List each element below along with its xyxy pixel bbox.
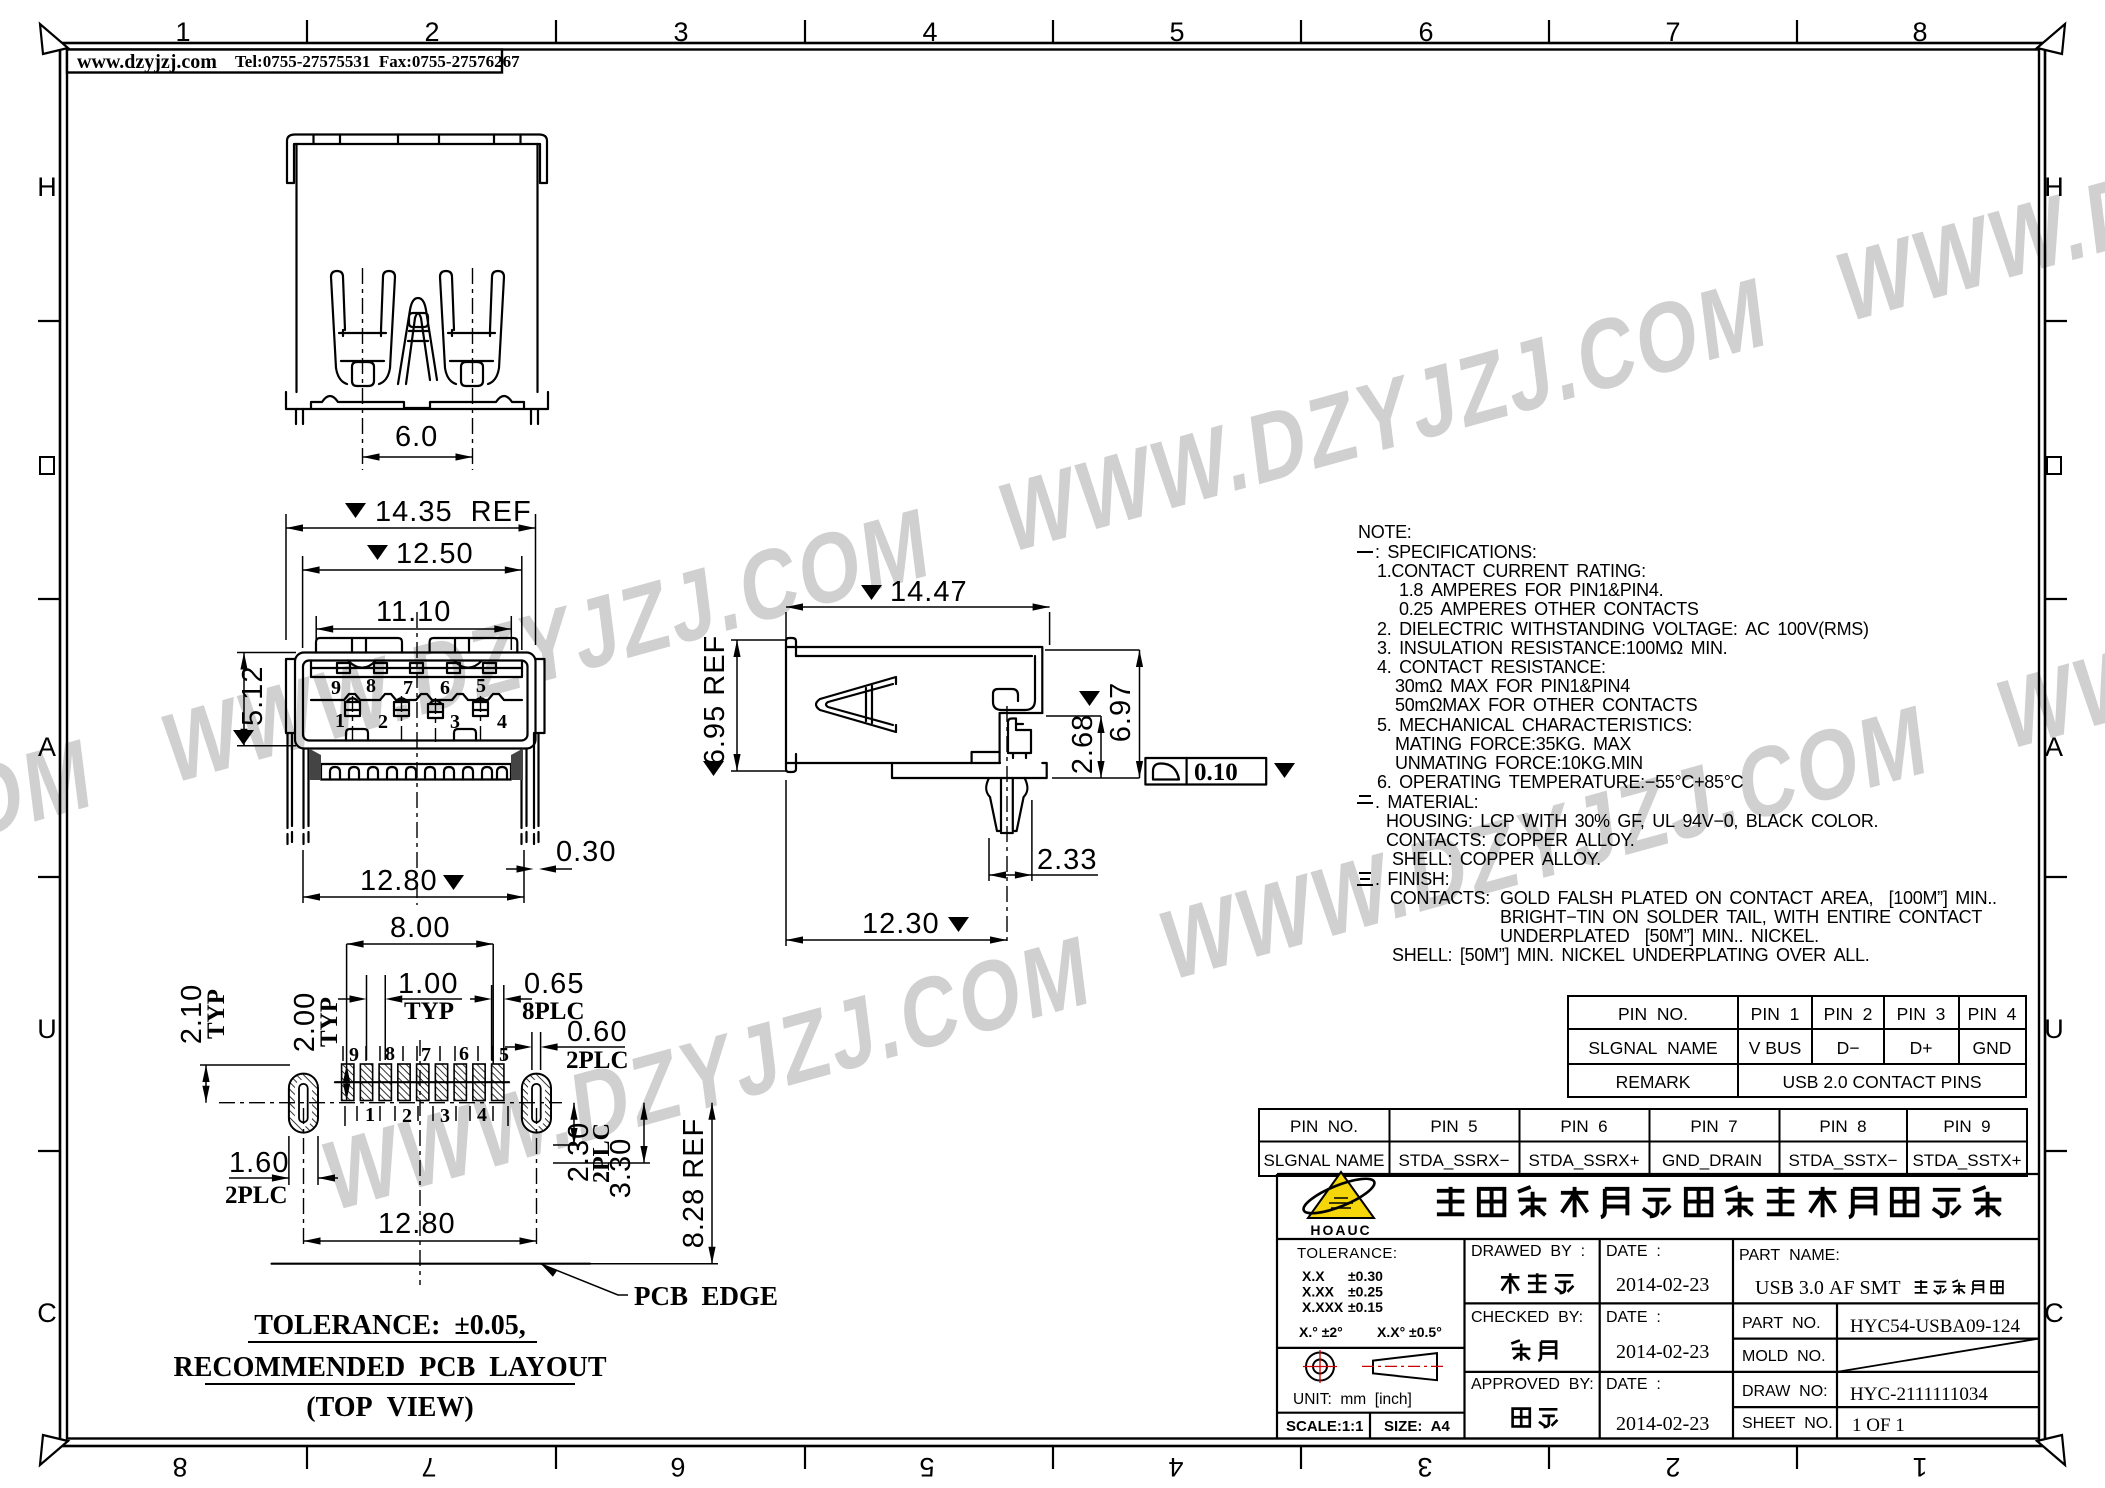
svg-text:STDA_SSTX−: STDA_SSTX−	[1788, 1151, 1897, 1170]
svg-text:UNIT: mm [inch]: UNIT: mm [inch]	[1293, 1391, 1412, 1408]
svg-text:3: 3	[1417, 1452, 1432, 1482]
svg-text:2: 2	[378, 711, 388, 733]
svg-text:PART NO.: PART NO.	[1742, 1315, 1821, 1332]
svg-text:UNDERPLATED [50M”] MIN.. NICK: UNDERPLATED [50M”] MIN.. NICKEL.	[1500, 926, 1819, 946]
svg-text:9: 9	[349, 1044, 359, 1066]
svg-text:TYP: TYP	[316, 997, 343, 1047]
svg-text:UNMATING FORCE:10KG.MIN: UNMATING FORCE:10KG.MIN	[1395, 753, 1643, 773]
svg-text:0.25 AMPERES OTHER CONTACTS: 0.25 AMPERES OTHER CONTACTS	[1399, 599, 1699, 619]
svg-text:7: 7	[421, 1044, 431, 1066]
svg-text:TYP: TYP	[203, 989, 230, 1039]
svg-text:NOTE:: NOTE:	[1358, 522, 1412, 542]
svg-text:PART NAME:: PART NAME:	[1739, 1247, 1840, 1264]
svg-text:7: 7	[403, 677, 413, 699]
svg-text:3: 3	[440, 1105, 450, 1127]
svg-text:0.60: 0.60	[567, 1016, 627, 1048]
svg-text:PIN NO.: PIN NO.	[1618, 1004, 1688, 1024]
svg-text:2.33: 2.33	[1037, 844, 1097, 876]
svg-text:PIN 5: PIN 5	[1430, 1117, 1477, 1136]
svg-text:SHELL: COPPER ALLOY.: SHELL: COPPER ALLOY.	[1392, 849, 1601, 869]
svg-text:(TOP VIEW): (TOP VIEW)	[306, 1392, 474, 1423]
svg-text:4: 4	[497, 711, 507, 733]
svg-text:12.30: 12.30	[862, 908, 940, 940]
svg-text:HYC-2111111034: HYC-2111111034	[1850, 1384, 1988, 1405]
svg-text:2: 2	[1665, 1452, 1680, 1482]
svg-text:PIN 7: PIN 7	[1690, 1117, 1737, 1136]
svg-text:14.47: 14.47	[890, 576, 968, 608]
svg-text:5: 5	[919, 1452, 934, 1482]
svg-text:U: U	[37, 1014, 57, 1044]
svg-text:CONTACTS:: CONTACTS:	[1390, 888, 1490, 908]
svg-text:2. DIELECTRIC WITHSTANDING VOL: 2. DIELECTRIC WITHSTANDING VOLTAGE: AC 1…	[1377, 619, 1869, 639]
svg-text:12.80: 12.80	[378, 1208, 456, 1240]
svg-text:14.35 REF: 14.35 REF	[375, 496, 532, 528]
svg-text:2014-02-23: 2014-02-23	[1616, 1274, 1709, 1296]
svg-text:MOLD NO.: MOLD NO.	[1742, 1348, 1826, 1365]
svg-text:8: 8	[366, 675, 376, 697]
svg-text:X.XXX: X.XXX	[1302, 1299, 1344, 1315]
svg-text:TOLERANCE: ±0.05,: TOLERANCE: ±0.05,	[254, 1310, 526, 1341]
svg-text:3: 3	[450, 711, 460, 733]
svg-text:1 OF 1: 1 OF 1	[1852, 1415, 1905, 1436]
svg-text:HOAUC: HOAUC	[1310, 1222, 1371, 1238]
svg-text:DATE :: DATE :	[1606, 1309, 1661, 1326]
svg-text:6.97: 6.97	[1105, 682, 1137, 742]
svg-text:SLGNAL NAME: SLGNAL NAME	[1588, 1038, 1717, 1058]
svg-text:2014-02-23: 2014-02-23	[1616, 1341, 1709, 1363]
svg-text:1.00: 1.00	[398, 968, 458, 1000]
svg-text:STDA_SSRX−: STDA_SSRX−	[1398, 1151, 1509, 1170]
svg-text:PIN 3: PIN 3	[1897, 1004, 1946, 1024]
svg-text:HOUSING: LCP WITH 30% GF, UL 9: HOUSING: LCP WITH 30% GF, UL 94V−0, BLAC…	[1386, 811, 1878, 831]
svg-text:6.95 REF: 6.95 REF	[699, 635, 731, 766]
svg-text:PCB EDGE: PCB EDGE	[634, 1281, 778, 1311]
svg-text:11.10: 11.10	[376, 596, 451, 628]
svg-text:6: 6	[670, 1452, 685, 1482]
svg-text:REMARK: REMARK	[1616, 1072, 1691, 1092]
svg-text:A: A	[38, 732, 56, 762]
svg-text:8: 8	[172, 1452, 187, 1482]
svg-text:8.00: 8.00	[390, 912, 450, 944]
svg-text:DATE :: DATE :	[1606, 1376, 1661, 1393]
svg-text:TYP: TYP	[404, 998, 454, 1025]
svg-text:C: C	[2044, 1298, 2064, 1328]
svg-text:1: 1	[175, 17, 190, 47]
svg-text:2PLC: 2PLC	[225, 1182, 288, 1209]
svg-text:HYC54-USBA09-124: HYC54-USBA09-124	[1850, 1316, 2020, 1337]
svg-text:7: 7	[1665, 17, 1680, 47]
svg-text:1.60: 1.60	[229, 1147, 289, 1179]
svg-text:: SPECIFICATIONS:: : SPECIFICATIONS:	[1375, 542, 1537, 562]
svg-text:PIN 4: PIN 4	[1968, 1004, 2017, 1024]
svg-text:50mΩMAX FOR OTHER CONTACTS: 50mΩMAX FOR OTHER CONTACTS	[1395, 695, 1698, 715]
svg-text:5: 5	[1169, 17, 1184, 47]
svg-text:PIN 2: PIN 2	[1824, 1004, 1873, 1024]
svg-text:PIN 8: PIN 8	[1819, 1117, 1866, 1136]
svg-text:5: 5	[476, 675, 486, 697]
svg-text:www.dzyjzj.com: www.dzyjzj.com	[77, 51, 217, 73]
svg-text:1.CONTACT CURRENT RATING:: 1.CONTACT CURRENT RATING:	[1377, 561, 1646, 581]
svg-text:3: 3	[673, 17, 688, 47]
svg-text:5. MECHANICAL CHARACTERISTICS:: 5. MECHANICAL CHARACTERISTICS:	[1377, 715, 1692, 735]
svg-text:GOLD FALSH PLATED ON CONTACT A: GOLD FALSH PLATED ON CONTACT AREA, [100M…	[1500, 888, 1997, 908]
svg-text:Tel:0755-27575531 Fax:0755-27: Tel:0755-27575531 Fax:0755-27576267	[235, 52, 520, 71]
svg-text:1: 1	[1912, 1452, 1927, 1482]
svg-text:4: 4	[477, 1104, 487, 1126]
svg-text:0.30: 0.30	[556, 836, 616, 868]
svg-text:12.50: 12.50	[396, 538, 474, 570]
svg-text:SLGNAL NAME: SLGNAL NAME	[1264, 1151, 1385, 1170]
svg-text:30mΩ MAX FOR PIN1&PIN4: 30mΩ MAX FOR PIN1&PIN4	[1395, 676, 1630, 696]
svg-text:4: 4	[922, 17, 937, 47]
svg-text:X.° ±2°: X.° ±2°	[1299, 1324, 1343, 1340]
svg-text:BRIGHT−TIN ON SOLDER TAIL, WIT: BRIGHT−TIN ON SOLDER TAIL, WITH ENTIRE C…	[1500, 907, 1982, 927]
svg-text:SHEET NO.: SHEET NO.	[1742, 1415, 1833, 1432]
svg-text:6: 6	[1418, 17, 1433, 47]
svg-text:5.12: 5.12	[237, 666, 269, 726]
svg-text:8: 8	[1912, 17, 1927, 47]
svg-text:U: U	[2044, 1014, 2064, 1044]
svg-text:APPROVED BY:: APPROVED BY:	[1471, 1376, 1594, 1393]
svg-text:A: A	[2045, 732, 2063, 762]
svg-text:D+: D+	[1910, 1038, 1933, 1058]
svg-text:SHELL: [50M”] MIN. NICKEL UNDE: SHELL: [50M”] MIN. NICKEL UNDERPLATING O…	[1392, 945, 1869, 965]
svg-text:SCALE:1:1: SCALE:1:1	[1286, 1418, 1364, 1435]
svg-text:6. OPERATING TEMPERATURE:−55°C: 6. OPERATING TEMPERATURE:−55°C+85°C	[1377, 772, 1744, 792]
svg-text:9: 9	[331, 677, 341, 699]
svg-text:X.XX: X.XX	[1302, 1284, 1335, 1300]
svg-text:6: 6	[440, 677, 450, 699]
svg-text:1.8 AMPERES FOR PIN1&PIN4.: 1.8 AMPERES FOR PIN1&PIN4.	[1399, 580, 1663, 600]
svg-text:1: 1	[365, 1104, 375, 1126]
svg-text:CONTACTS: COPPER ALLOY.: CONTACTS: COPPER ALLOY.	[1386, 830, 1635, 850]
svg-text:4. CONTACT RESISTANCE:: 4. CONTACT RESISTANCE:	[1377, 657, 1606, 677]
svg-text:4: 4	[1168, 1452, 1183, 1482]
svg-text:X.X: X.X	[1302, 1268, 1325, 1284]
svg-text:H: H	[37, 172, 57, 202]
svg-text:2.68: 2.68	[1067, 714, 1099, 774]
svg-text:CHECKED BY:: CHECKED BY:	[1471, 1309, 1583, 1326]
svg-text:8: 8	[385, 1043, 395, 1065]
svg-text:PIN 6: PIN 6	[1560, 1117, 1607, 1136]
svg-text:DRAW NO:: DRAW NO:	[1742, 1383, 1828, 1400]
svg-text:DRAWED BY :: DRAWED BY :	[1471, 1243, 1585, 1260]
svg-text:X.X° ±0.5°: X.X° ±0.5°	[1377, 1324, 1442, 1340]
svg-text:GND: GND	[1973, 1038, 2012, 1058]
svg-text:±0.30: ±0.30	[1348, 1268, 1383, 1284]
svg-text:1: 1	[335, 710, 345, 732]
svg-text:. MATERIAL:: . MATERIAL:	[1375, 792, 1478, 812]
svg-text:6.0: 6.0	[395, 421, 438, 453]
svg-text:STDA_SSRX+: STDA_SSRX+	[1528, 1151, 1639, 1170]
svg-text:. FINISH:: . FINISH:	[1375, 869, 1449, 889]
svg-text:USB 3.0 AF SMT: USB 3.0 AF SMT	[1755, 1277, 1901, 1299]
svg-text:2014-02-23: 2014-02-23	[1616, 1413, 1709, 1435]
svg-text:H: H	[2044, 172, 2064, 202]
svg-text:±0.15: ±0.15	[1348, 1299, 1383, 1315]
svg-text:2: 2	[424, 17, 439, 47]
svg-text:0.65: 0.65	[524, 968, 584, 1000]
svg-text:2PLC: 2PLC	[566, 1047, 629, 1074]
svg-text:3. INSULATION RESISTANCE:100MΩ: 3. INSULATION RESISTANCE:100MΩ MIN.	[1377, 638, 1727, 658]
svg-text:PIN 1: PIN 1	[1751, 1004, 1800, 1024]
svg-text:6: 6	[459, 1043, 469, 1065]
svg-text:2: 2	[402, 1105, 412, 1127]
svg-text:D−: D−	[1837, 1038, 1860, 1058]
svg-text:SIZE: A4: SIZE: A4	[1384, 1418, 1451, 1435]
svg-text:3.30: 3.30	[605, 1138, 637, 1198]
svg-text:DATE :: DATE :	[1606, 1243, 1661, 1260]
svg-text:PIN 9: PIN 9	[1943, 1117, 1990, 1136]
svg-text:TOLERANCE:: TOLERANCE:	[1297, 1245, 1398, 1262]
svg-text:PIN NO.: PIN NO.	[1290, 1117, 1358, 1136]
svg-text:STDA_SSTX+: STDA_SSTX+	[1912, 1151, 2021, 1170]
svg-text:0.10: 0.10	[1194, 759, 1238, 786]
svg-text:12.80: 12.80	[360, 865, 438, 897]
svg-text:RECOMMENDED PCB LAYOUT: RECOMMENDED PCB LAYOUT	[174, 1352, 607, 1383]
svg-text:GND_DRAIN: GND_DRAIN	[1662, 1151, 1762, 1170]
svg-text:7: 7	[421, 1452, 436, 1482]
svg-text:USB 2.0 CONTACT PINS: USB 2.0 CONTACT PINS	[1782, 1072, 1981, 1092]
svg-text:±0.25: ±0.25	[1348, 1284, 1383, 1300]
svg-text:C: C	[37, 1298, 57, 1328]
svg-text:V BUS: V BUS	[1749, 1038, 1802, 1058]
svg-text:MATING FORCE:35KG. MAX: MATING FORCE:35KG. MAX	[1395, 734, 1631, 754]
svg-text:8.28 REF: 8.28 REF	[678, 1118, 710, 1249]
